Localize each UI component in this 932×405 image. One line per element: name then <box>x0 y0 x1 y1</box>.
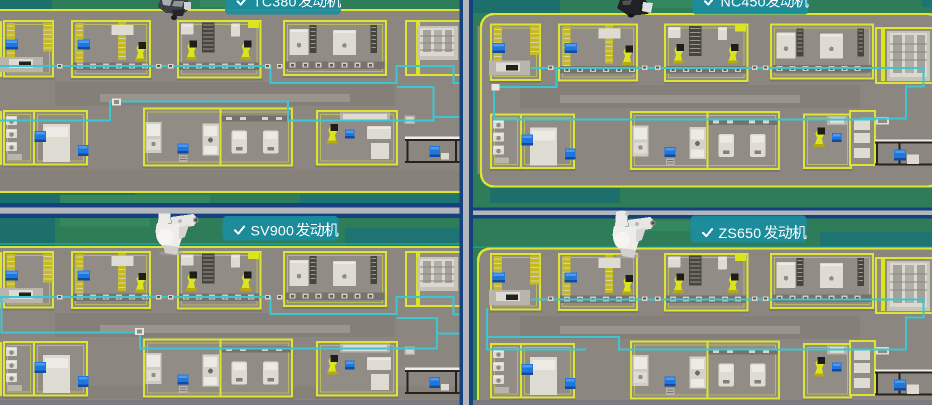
svg-text:NC450: NC450 <box>721 0 766 10</box>
svg-text:TC380: TC380 <box>253 0 297 10</box>
svg-text:ZS650: ZS650 <box>719 226 762 242</box>
svg-text:SV900: SV900 <box>251 223 295 239</box>
